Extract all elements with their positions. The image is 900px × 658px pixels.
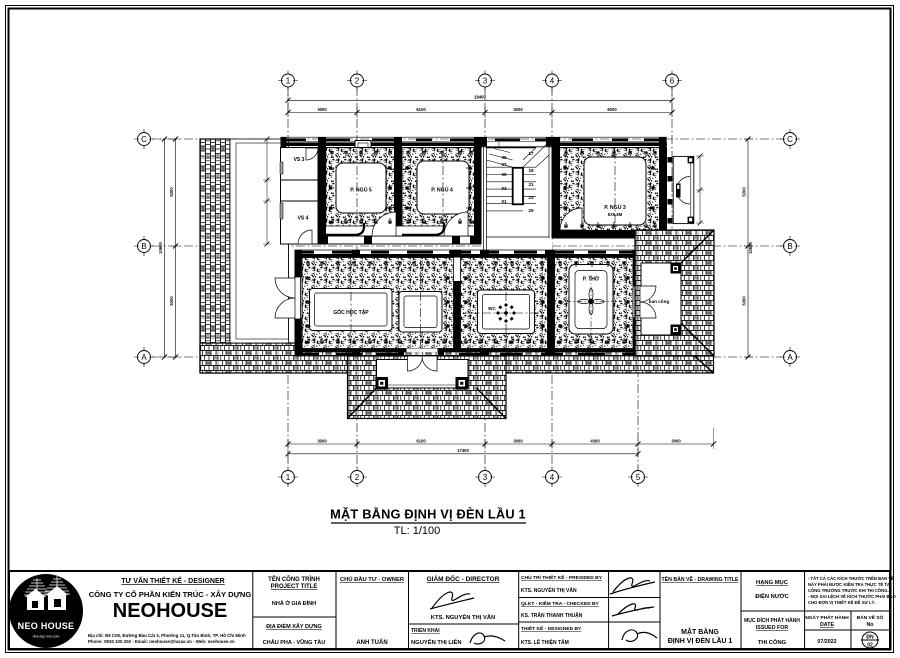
svg-text:10600: 10600 (158, 242, 163, 254)
svg-text:5: 5 (636, 473, 641, 482)
svg-text:CÔNG TY CỔ PHẦN KIẾN TRÚC - XÂ: CÔNG TY CỔ PHẦN KIẾN TRÚC - XÂY DỰNG (89, 589, 252, 599)
svg-text:BẢN VẼ SỐ: BẢN VẼ SỐ (857, 614, 884, 621)
svg-text:CHO ĐƠN VỊ THIẾT KẾ ĐỂ XỬ LÝ.: CHO ĐƠN VỊ THIẾT KẾ ĐỂ XỬ LÝ. (808, 600, 876, 605)
svg-text:CÔNG TRƯỜNG TRƯỚC KHI THI CÔNG: CÔNG TRƯỜNG TRƯỚC KHI THI CÔNG. (808, 588, 889, 593)
svg-text:1: 1 (286, 76, 291, 85)
svg-text:6100: 6100 (416, 107, 426, 112)
svg-text:3000: 3000 (513, 107, 523, 112)
svg-text:NHÀ Ở GIA ĐÌNH: NHÀ Ở GIA ĐÌNH (272, 599, 316, 607)
svg-text:THI CÔNG: THI CÔNG (758, 638, 787, 646)
svg-text:3: 3 (483, 473, 488, 482)
svg-text:B: B (141, 242, 146, 251)
svg-text:17400: 17400 (457, 448, 469, 453)
svg-text:CHỦ ĐẦU TƯ - OWNER: CHỦ ĐẦU TƯ - OWNER (340, 576, 405, 583)
svg-text:MỤC ĐÍCH PHÁT HÀNH: MỤC ĐÍCH PHÁT HÀNH (744, 616, 800, 624)
svg-text:21: 21 (528, 182, 534, 187)
svg-text:TÊN CÔNG TRÌNH: TÊN CÔNG TRÌNH (268, 575, 320, 583)
svg-text:TRIỂN KHAI: TRIỂN KHAI (411, 627, 440, 634)
svg-text:C: C (787, 135, 793, 144)
svg-text:1: 1 (286, 473, 291, 482)
svg-text:NGÀY PHÁT HÀNH: NGÀY PHÁT HÀNH (805, 614, 849, 621)
svg-text:NGUYỄN THỊ LIÊN: NGUYỄN THỊ LIÊN (411, 638, 462, 646)
svg-text:B: B (787, 242, 792, 251)
svg-text:VS 3: VS 3 (294, 157, 305, 163)
svg-text:P. NGỦ 4: P. NGỦ 4 (431, 187, 453, 194)
svg-text:NEOHOUSE: NEOHOUSE (113, 600, 227, 622)
svg-text:10600: 10600 (748, 242, 753, 254)
svg-text:25: 25 (528, 208, 534, 213)
svg-text:3000: 3000 (671, 438, 681, 443)
svg-text:4300: 4300 (590, 438, 600, 443)
svg-text:07/2022: 07/2022 (817, 639, 836, 645)
svg-text:KS. TRẦN THANH THUẬN: KS. TRẦN THANH THUẬN (521, 612, 583, 619)
svg-text:NEO HOUSE: NEO HOUSE (18, 621, 75, 631)
svg-text:TÊN BẢN VẼ - DRAWING TITLE: TÊN BẢN VẼ - DRAWING TITLE (662, 575, 739, 583)
svg-text:A: A (787, 353, 793, 362)
svg-text:MẶT BẰNG: MẶT BẰNG (681, 627, 719, 636)
svg-text:ĐN: ĐN (866, 635, 874, 641)
svg-text:KTS. NGUYỄN THỊ VÂN: KTS. NGUYỄN THỊ VÂN (521, 587, 577, 594)
svg-text:A: A (141, 353, 147, 362)
svg-text:2: 2 (355, 473, 360, 482)
svg-text:5300: 5300 (169, 187, 174, 197)
svg-text:09: 09 (501, 155, 507, 160)
svg-text:5300: 5300 (742, 187, 747, 197)
svg-text:No: No (866, 622, 874, 628)
svg-text:ĐIỆN NƯỚC: ĐIỆN NƯỚC (755, 592, 789, 600)
svg-text:ban công: ban công (649, 299, 670, 304)
svg-text:4: 4 (550, 473, 555, 482)
svg-text:P. NGỦ 5: P. NGỦ 5 (350, 187, 372, 194)
svg-text:GÓC HỌC TẬP: GÓC HỌC TẬP (333, 308, 369, 316)
svg-text:3000: 3000 (317, 107, 327, 112)
svg-text:WC: WC (488, 306, 496, 311)
svg-text:6100: 6100 (416, 438, 426, 443)
svg-text:17: 17 (528, 151, 534, 156)
svg-text:4: 4 (550, 76, 555, 85)
svg-text:Phone: 0933 100 202 - Email: n: Phone: 0933 100 202 - Email: neohouse@lu… (88, 639, 235, 644)
svg-text:6000: 6000 (607, 107, 617, 112)
svg-text:23: 23 (528, 195, 534, 200)
svg-text:HẠNG MỤC: HẠNG MỤC (756, 580, 789, 586)
svg-text:C: C (141, 135, 147, 144)
svg-text:PROJECT TITLE: PROJECT TITLE (271, 584, 318, 590)
svg-text:THIẾT KẾ - DESIGNED BY: THIẾT KẾ - DESIGNED BY (521, 625, 582, 632)
svg-text:KTS. LÊ THIỆN TÂM: KTS. LÊ THIỆN TÂM (521, 638, 569, 646)
svg-text:VS 4: VS 4 (298, 216, 309, 222)
svg-text:5300: 5300 (742, 296, 747, 306)
svg-text:5300: 5300 (169, 296, 174, 306)
svg-text:P. THỜ: P. THỜ (583, 275, 600, 283)
svg-text:19: 19 (528, 168, 534, 173)
svg-text:6: 6 (670, 76, 675, 85)
svg-text:nha dep moi.com: nha dep moi.com (33, 635, 60, 639)
svg-text:Địa chỉ: Đ5 C05, Đường Bàu Cát: Địa chỉ: Đ5 C05, Đường Bàu Cát 3, Phường… (88, 633, 246, 638)
svg-text:03: 03 (501, 186, 507, 191)
svg-text:ĐỊA ĐIỂM XÂY DỰNG: ĐỊA ĐIỂM XÂY DỰNG (266, 623, 322, 630)
svg-text:CHÂU PHA - VŨNG TÀU: CHÂU PHA - VŨNG TÀU (263, 639, 325, 646)
svg-text:02: 02 (867, 643, 873, 649)
svg-text:3000: 3000 (317, 438, 327, 443)
svg-text:- TẤT CẢ CÁC KÍCH THƯỚC TRÊN B: - TẤT CẢ CÁC KÍCH THƯỚC TRÊN BẢN VẼ (808, 576, 894, 581)
svg-text:TL: 1/100: TL: 1/100 (394, 525, 440, 537)
svg-text:3: 3 (483, 76, 488, 85)
svg-text:NÀY PHẢI ĐƯỢC KIỂM TRA THỰC TẾ: NÀY PHẢI ĐƯỢC KIỂM TRA THỰC TẾ TẠI (808, 582, 891, 587)
svg-text:2: 2 (355, 76, 360, 85)
svg-text:01: 01 (501, 199, 507, 204)
svg-text:KTS. NGUYỄN THỊ VÂN: KTS. NGUYỄN THỊ VÂN (431, 614, 495, 621)
svg-text:ANH TUẤN: ANH TUẤN (356, 639, 387, 646)
svg-text:DATE: DATE (820, 622, 834, 628)
svg-text:05: 05 (501, 172, 507, 177)
svg-text:ISSUED FOR: ISSUED FOR (756, 625, 789, 631)
svg-text:- MỌI SAI LỆCH VỀ KÍCH THƯỚC P: - MỌI SAI LỆCH VỀ KÍCH THƯỚC PHẢI BÁO (808, 594, 897, 599)
svg-text:3000: 3000 (513, 438, 523, 443)
svg-text:07: 07 (501, 162, 507, 167)
svg-text:18400: 18400 (474, 95, 486, 100)
svg-text:MẶT BẰNG ĐỊNH VỊ ĐÈN LẦU 1: MẶT BẰNG ĐỊNH VỊ ĐÈN LẦU 1 (330, 507, 526, 522)
svg-text:QLKT - KIỂM TRA - CHECKED BY: QLKT - KIỂM TRA - CHECKED BY (521, 600, 600, 607)
